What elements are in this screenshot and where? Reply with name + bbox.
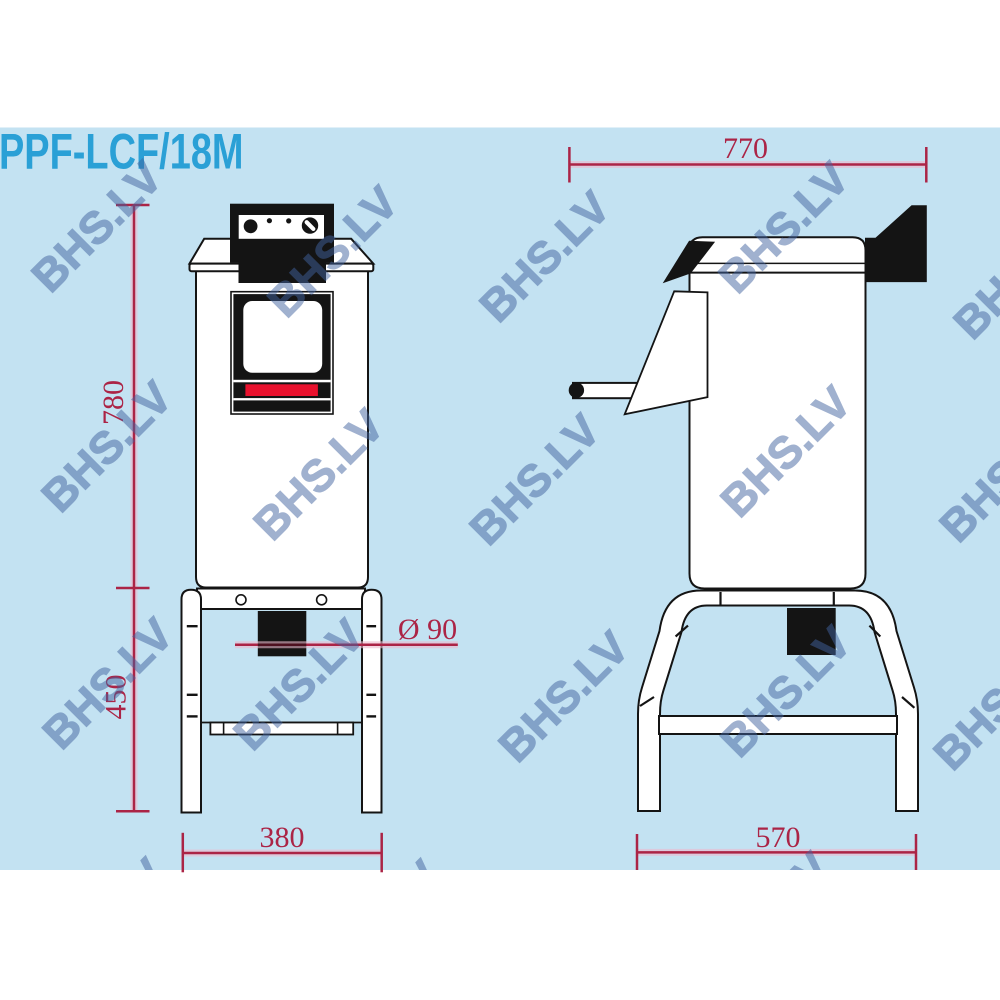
svg-text:770: 770 bbox=[723, 132, 768, 165]
svg-text:380: 380 bbox=[260, 821, 305, 854]
svg-text:Ø 90: Ø 90 bbox=[398, 613, 457, 646]
svg-text:570: 570 bbox=[756, 821, 801, 854]
